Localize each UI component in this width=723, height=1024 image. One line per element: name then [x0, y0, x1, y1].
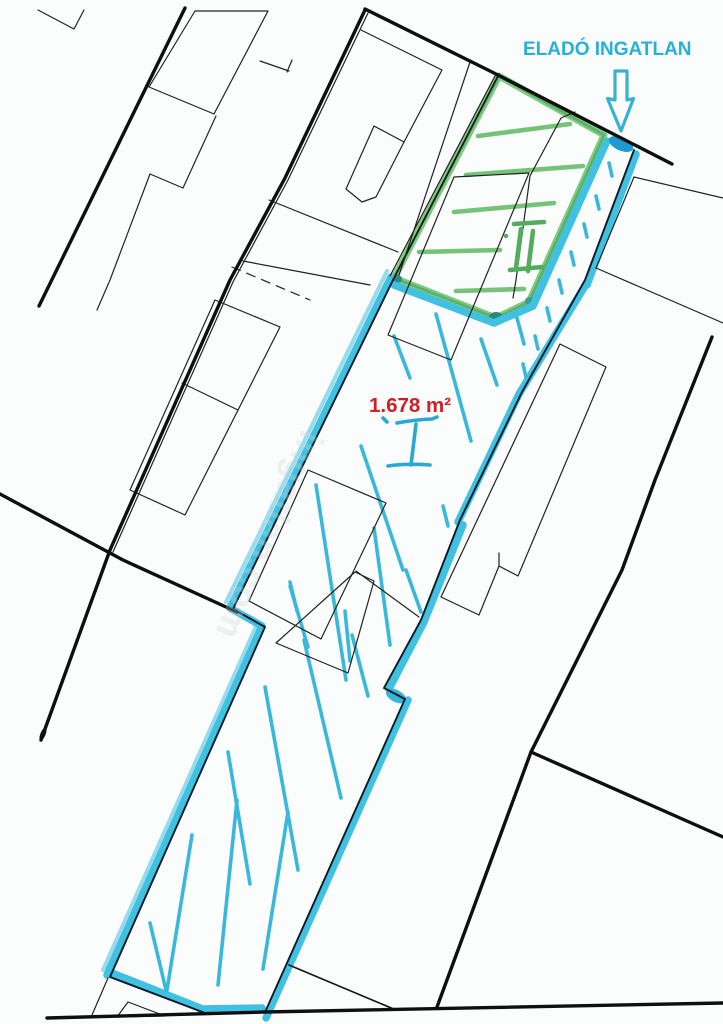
svg-text:1.678 m²: 1.678 m² [369, 394, 451, 417]
svg-text:ELADÓ INGATLAN: ELADÓ INGATLAN [523, 38, 692, 60]
